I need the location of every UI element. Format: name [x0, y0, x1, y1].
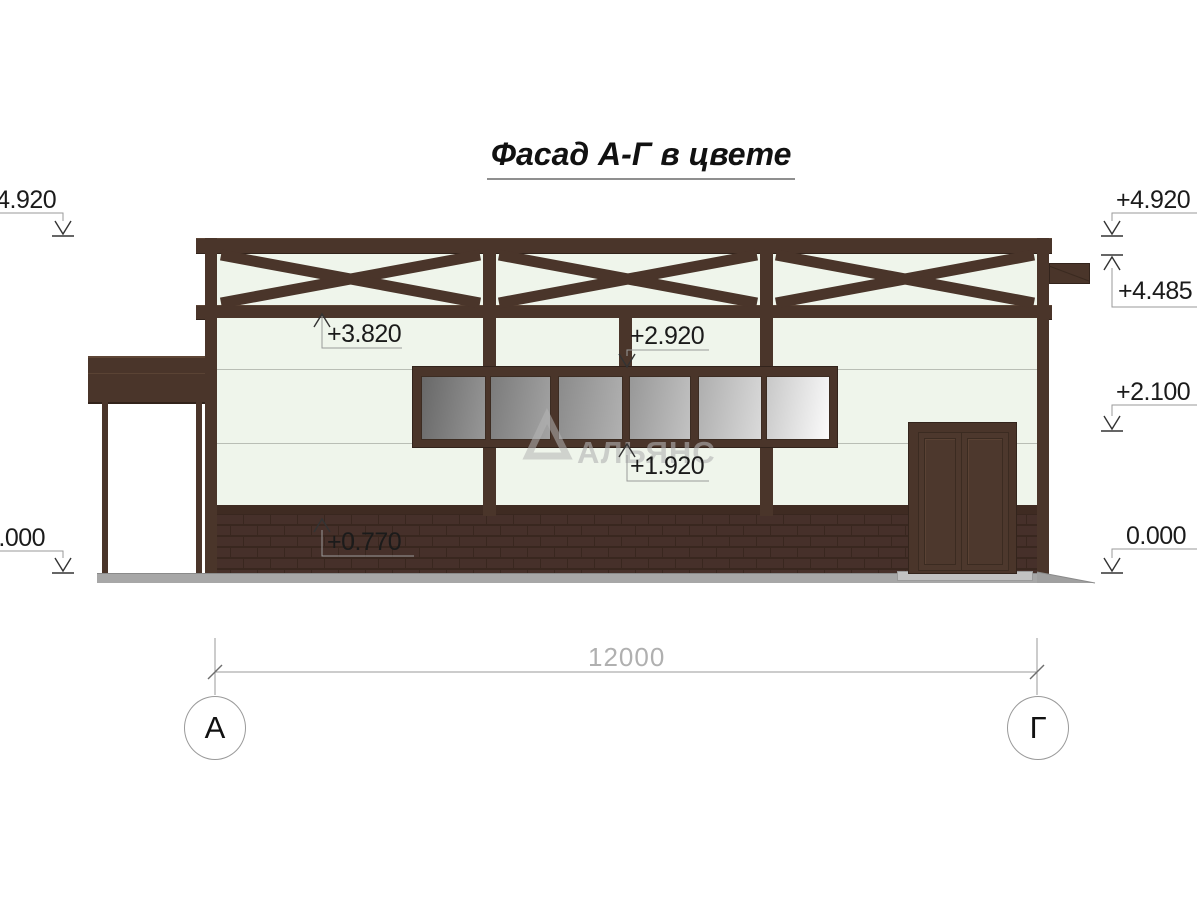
facade-elevation-drawing: Фасад А-Г в цвете: [0, 0, 1200, 900]
door-panel: [924, 438, 956, 565]
elevation-label-right-2100: +2.100: [1116, 380, 1190, 405]
grid-bubble-g: Г: [1007, 696, 1069, 760]
corner-column-right: [1037, 238, 1049, 574]
window-pane: [698, 376, 762, 440]
window-pane: [766, 376, 830, 440]
elevation-label-right-4485: +4.485: [1118, 279, 1192, 304]
canopy-post-right: [196, 400, 202, 573]
ground-line: [97, 573, 1037, 583]
elevation-label-left-4920: +4.920: [0, 188, 56, 213]
level-arrow-icon: [1104, 416, 1120, 429]
grid-axis-label: А: [205, 710, 226, 746]
dimension-tick-icon: [1030, 665, 1044, 679]
level-arrow-icon: [55, 558, 71, 571]
window-pane: [421, 376, 486, 440]
mullion-right-lower: [760, 448, 773, 516]
dimension-value: 12000: [588, 644, 665, 670]
canopy-roof: [88, 356, 216, 404]
truss-panel-background: [217, 252, 1037, 306]
elevation-mark-right-0000: [1101, 549, 1197, 573]
window-pane: [629, 376, 691, 440]
entrance-door: [908, 422, 1017, 574]
mullion-left-lower: [483, 448, 496, 516]
canopy-post-left: [102, 400, 108, 573]
grid-bubble-a: А: [184, 696, 246, 760]
grid-axis-label: Г: [1030, 710, 1047, 746]
corner-column-left: [205, 238, 217, 574]
elevation-label-3820: +3.820: [327, 322, 401, 347]
elevation-label-right-0000: 0.000: [1126, 524, 1186, 549]
door-leaf-wide: [961, 432, 1009, 571]
elevation-label-2920: +2.920: [630, 324, 704, 349]
window-pane: [490, 376, 551, 440]
door-panel: [967, 438, 1003, 565]
elevation-mark-right-2100: [1101, 405, 1197, 431]
outrigger-beam: [1049, 263, 1090, 284]
elevation-label-right-4920: +4.920: [1116, 188, 1190, 213]
level-arrow-icon: [1104, 558, 1120, 571]
elevation-mark-left-0000: [0, 551, 74, 573]
elevation-mark-right-4920: [1101, 213, 1197, 236]
canopy-fascia-line: [88, 373, 216, 374]
drawing-title: Фасад А-Г в цвете: [487, 136, 795, 180]
level-arrow-icon: [55, 221, 71, 234]
level-arrow-icon: [1104, 221, 1120, 234]
dimension-tick-icon: [208, 665, 222, 679]
elevation-mark-left-4920: [0, 213, 74, 236]
mullion-right-upper: [760, 251, 773, 366]
elevation-label-left-0000: 0.000: [0, 526, 45, 551]
roof-top-chord: [196, 238, 1052, 254]
elevation-label-0770: +0.770: [327, 530, 401, 555]
window-pane: [558, 376, 623, 440]
door-leaf-narrow: [918, 432, 962, 571]
mullion-left-upper: [483, 251, 496, 366]
elevation-label-1920: +1.920: [630, 454, 704, 479]
level-arrow-icon: [1104, 257, 1120, 270]
